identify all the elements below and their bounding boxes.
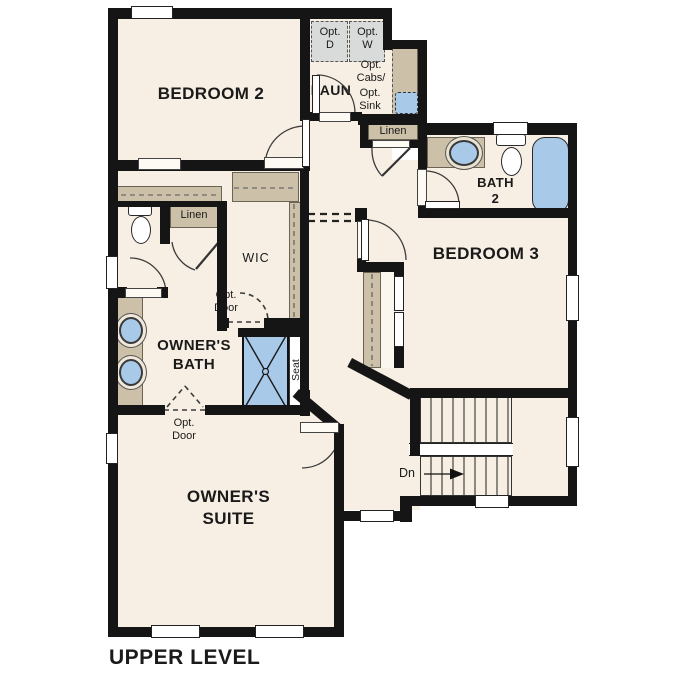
room-label-bedroom3: BEDROOM 3: [404, 244, 568, 264]
bedroom3-closet-shelf: [363, 272, 381, 368]
owners-toilet-bowl-icon: [131, 216, 151, 244]
bath2-toilet-tank-icon: [496, 134, 526, 146]
wall: [117, 201, 227, 207]
wall: [410, 390, 420, 456]
window: [131, 6, 173, 19]
label-down: Dn: [394, 466, 420, 480]
window: [566, 417, 579, 467]
wall: [300, 160, 309, 393]
room-label-linen-owners: Linen: [170, 209, 218, 222]
wall: [108, 405, 165, 415]
wall: [108, 8, 118, 637]
door-leaf-bedroom3: [361, 219, 369, 261]
window: [475, 495, 509, 508]
wall: [410, 388, 577, 398]
wall: [418, 134, 427, 171]
bedroom3-closet-floor: [381, 272, 394, 368]
wall: [238, 328, 306, 337]
wall: [358, 114, 427, 125]
closet-bypass-door: [394, 312, 404, 347]
door-leaf-laundry: [312, 75, 320, 114]
door-leaf-bedroom2: [302, 119, 310, 167]
label-opt-door-suite: Opt. Door: [161, 417, 207, 442]
door-opening-laundry: [319, 112, 351, 122]
door-opening-bedroom2: [264, 157, 304, 169]
stairs-lower-flight: [420, 456, 512, 496]
wall: [300, 12, 310, 121]
page-title: UPPER LEVEL: [109, 646, 309, 670]
room-label-owners-bath: OWNER'S BATH: [139, 336, 249, 374]
window: [360, 510, 394, 522]
window: [566, 275, 579, 321]
label-opt-dryer: Opt. D: [312, 26, 348, 51]
opt-laundry-sink: [395, 92, 418, 114]
room-label-wic: WIC: [230, 251, 282, 265]
label-opt-cabs: Opt. Cabs/: [350, 59, 392, 84]
shower-icon: [242, 332, 289, 411]
door-opening-owners-suite: [300, 422, 339, 433]
window: [106, 256, 118, 289]
wall: [160, 203, 170, 244]
wall: [217, 318, 229, 328]
door-opening-toilet-room: [125, 288, 162, 298]
window: [493, 122, 528, 135]
window: [106, 433, 118, 464]
wall: [264, 318, 301, 328]
wall: [108, 627, 343, 637]
room-label-owners-suite: OWNER'S SUITE: [140, 486, 317, 530]
floor-plan: BEDROOM 2 LAUN Opt. D Opt. W Opt. Cabs/ …: [0, 0, 687, 687]
wall: [205, 405, 306, 415]
label-opt-sink: Opt. Sink: [350, 87, 390, 112]
room-label-bath2: BATH 2: [469, 175, 522, 207]
stairs-landing: [409, 443, 513, 456]
wall: [334, 424, 344, 637]
label-opt-washer: Opt. W: [350, 26, 385, 51]
door-leaf-bath2: [425, 201, 460, 209]
window: [255, 625, 304, 638]
bath2-sink-icon: [449, 140, 479, 166]
stairs-upper-flight: [420, 395, 512, 443]
closet-bypass-door: [394, 276, 404, 311]
bath2-toilet-bowl-icon: [501, 147, 522, 176]
wall: [217, 203, 227, 331]
room-label-linen-hall: Linen: [368, 125, 418, 138]
wall: [418, 208, 577, 218]
window: [151, 625, 200, 638]
bathtub-icon: [532, 137, 569, 213]
wall: [394, 346, 404, 368]
room-label-bedroom2: BEDROOM 2: [118, 84, 304, 104]
wic-shelf-north: [232, 172, 299, 202]
door-opening-linen-hall: [372, 140, 410, 148]
closet-opening-bedroom2: [138, 158, 181, 170]
